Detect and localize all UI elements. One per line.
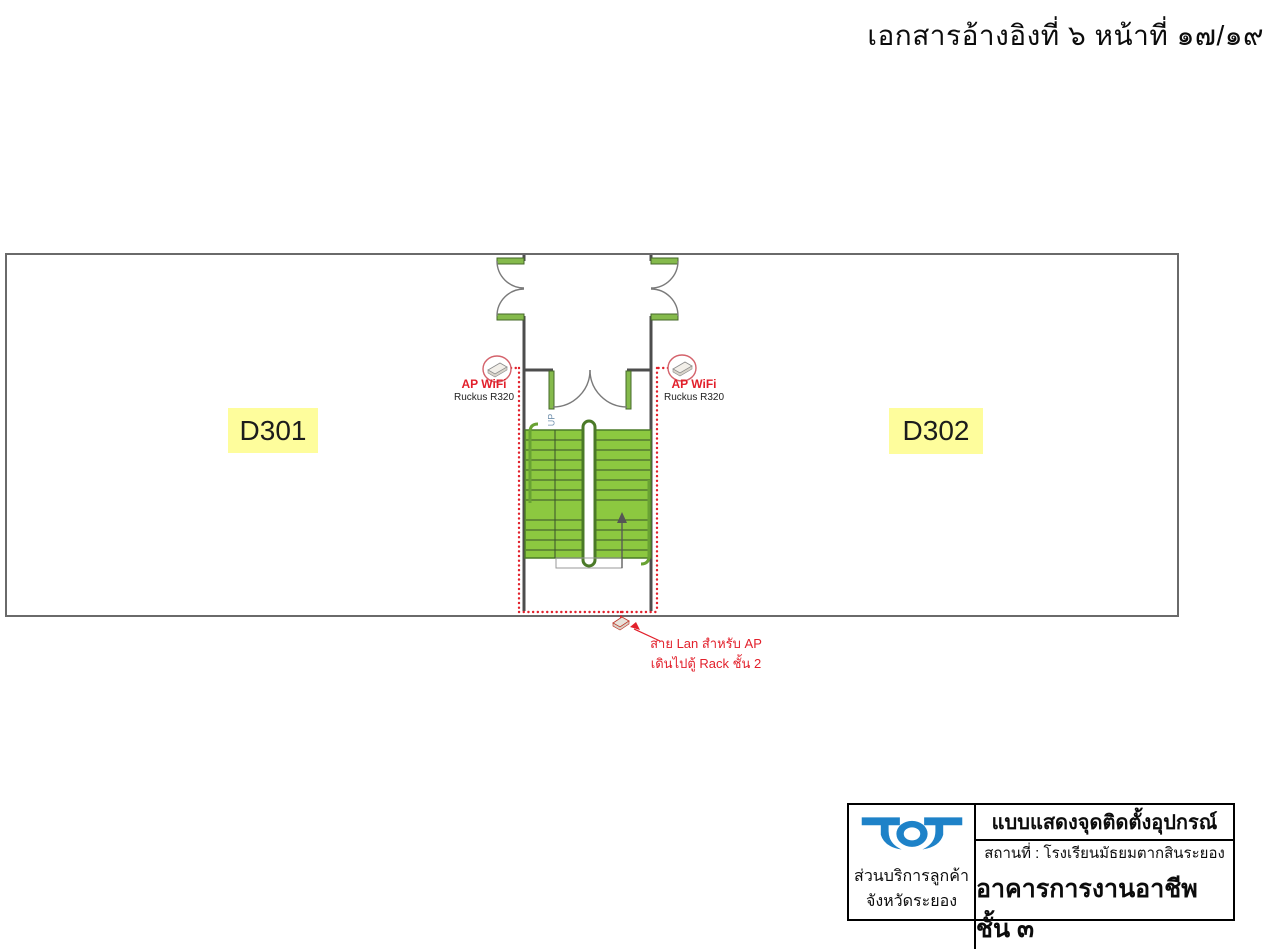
ap-name: AP WiFi [449, 378, 519, 391]
reference-header: เอกสารอ้างอิงที่ ๖ หน้าที่ ๑๗/๑๙ [867, 14, 1264, 58]
drawing-location-cell: สถานที่ : โรงเรียนมัธยมตากสินระยอง อาคาร… [976, 841, 1233, 949]
ap-wifi-label-left: AP WiFi Ruckus R320 [449, 378, 519, 403]
building-text: อาคารการงานอาชีพ ชั้น ๓ [976, 869, 1233, 949]
title-block-info-cell: แบบแสดงจุดติดตั้งอุปกรณ์ สถานที่ : โรงเร… [976, 805, 1233, 949]
cable-annotation-line1: สาย Lan สำหรับ AP [628, 634, 784, 654]
cable-annotation-line2: เดินไปตู้ Rack ชั้น 2 [628, 654, 784, 674]
department-line1: ส่วนบริการลูกค้า [854, 865, 969, 890]
stair-center-railing [583, 421, 595, 566]
location-text: สถานที่ : โรงเรียนมัธยมตากสินระยอง [984, 841, 1225, 865]
ap-model: Ruckus R320 [659, 392, 729, 403]
stair-up-label: UP [546, 414, 556, 427]
drawing-title: แบบแสดงจุดติดตั้งอุปกรณ์ [976, 805, 1233, 841]
cable-exit-symbol [613, 617, 629, 630]
ap-wifi-label-right: AP WiFi Ruckus R320 [659, 378, 729, 403]
title-block-org-cell: ส่วนบริการลูกค้า จังหวัดระยอง [849, 805, 976, 949]
room-label-d302: D302 [889, 408, 983, 454]
ap-name: AP WiFi [659, 378, 729, 391]
tot-logo [860, 810, 964, 856]
department-line2: จังหวัดระยอง [854, 890, 969, 915]
room-label-d301: D301 [228, 408, 318, 453]
title-block: ส่วนบริการลูกค้า จังหวัดระยอง แบบแสดงจุด… [847, 803, 1235, 921]
staircase [525, 421, 651, 568]
drawing-page: { "header": { "reference": "เอกสารอ้างอิ… [0, 0, 1280, 927]
cable-annotation: สาย Lan สำหรับ AP เดินไปตู้ Rack ชั้น 2 [628, 634, 784, 673]
floorplan-drawing [0, 0, 1280, 927]
ap-model: Ruckus R320 [449, 392, 519, 403]
